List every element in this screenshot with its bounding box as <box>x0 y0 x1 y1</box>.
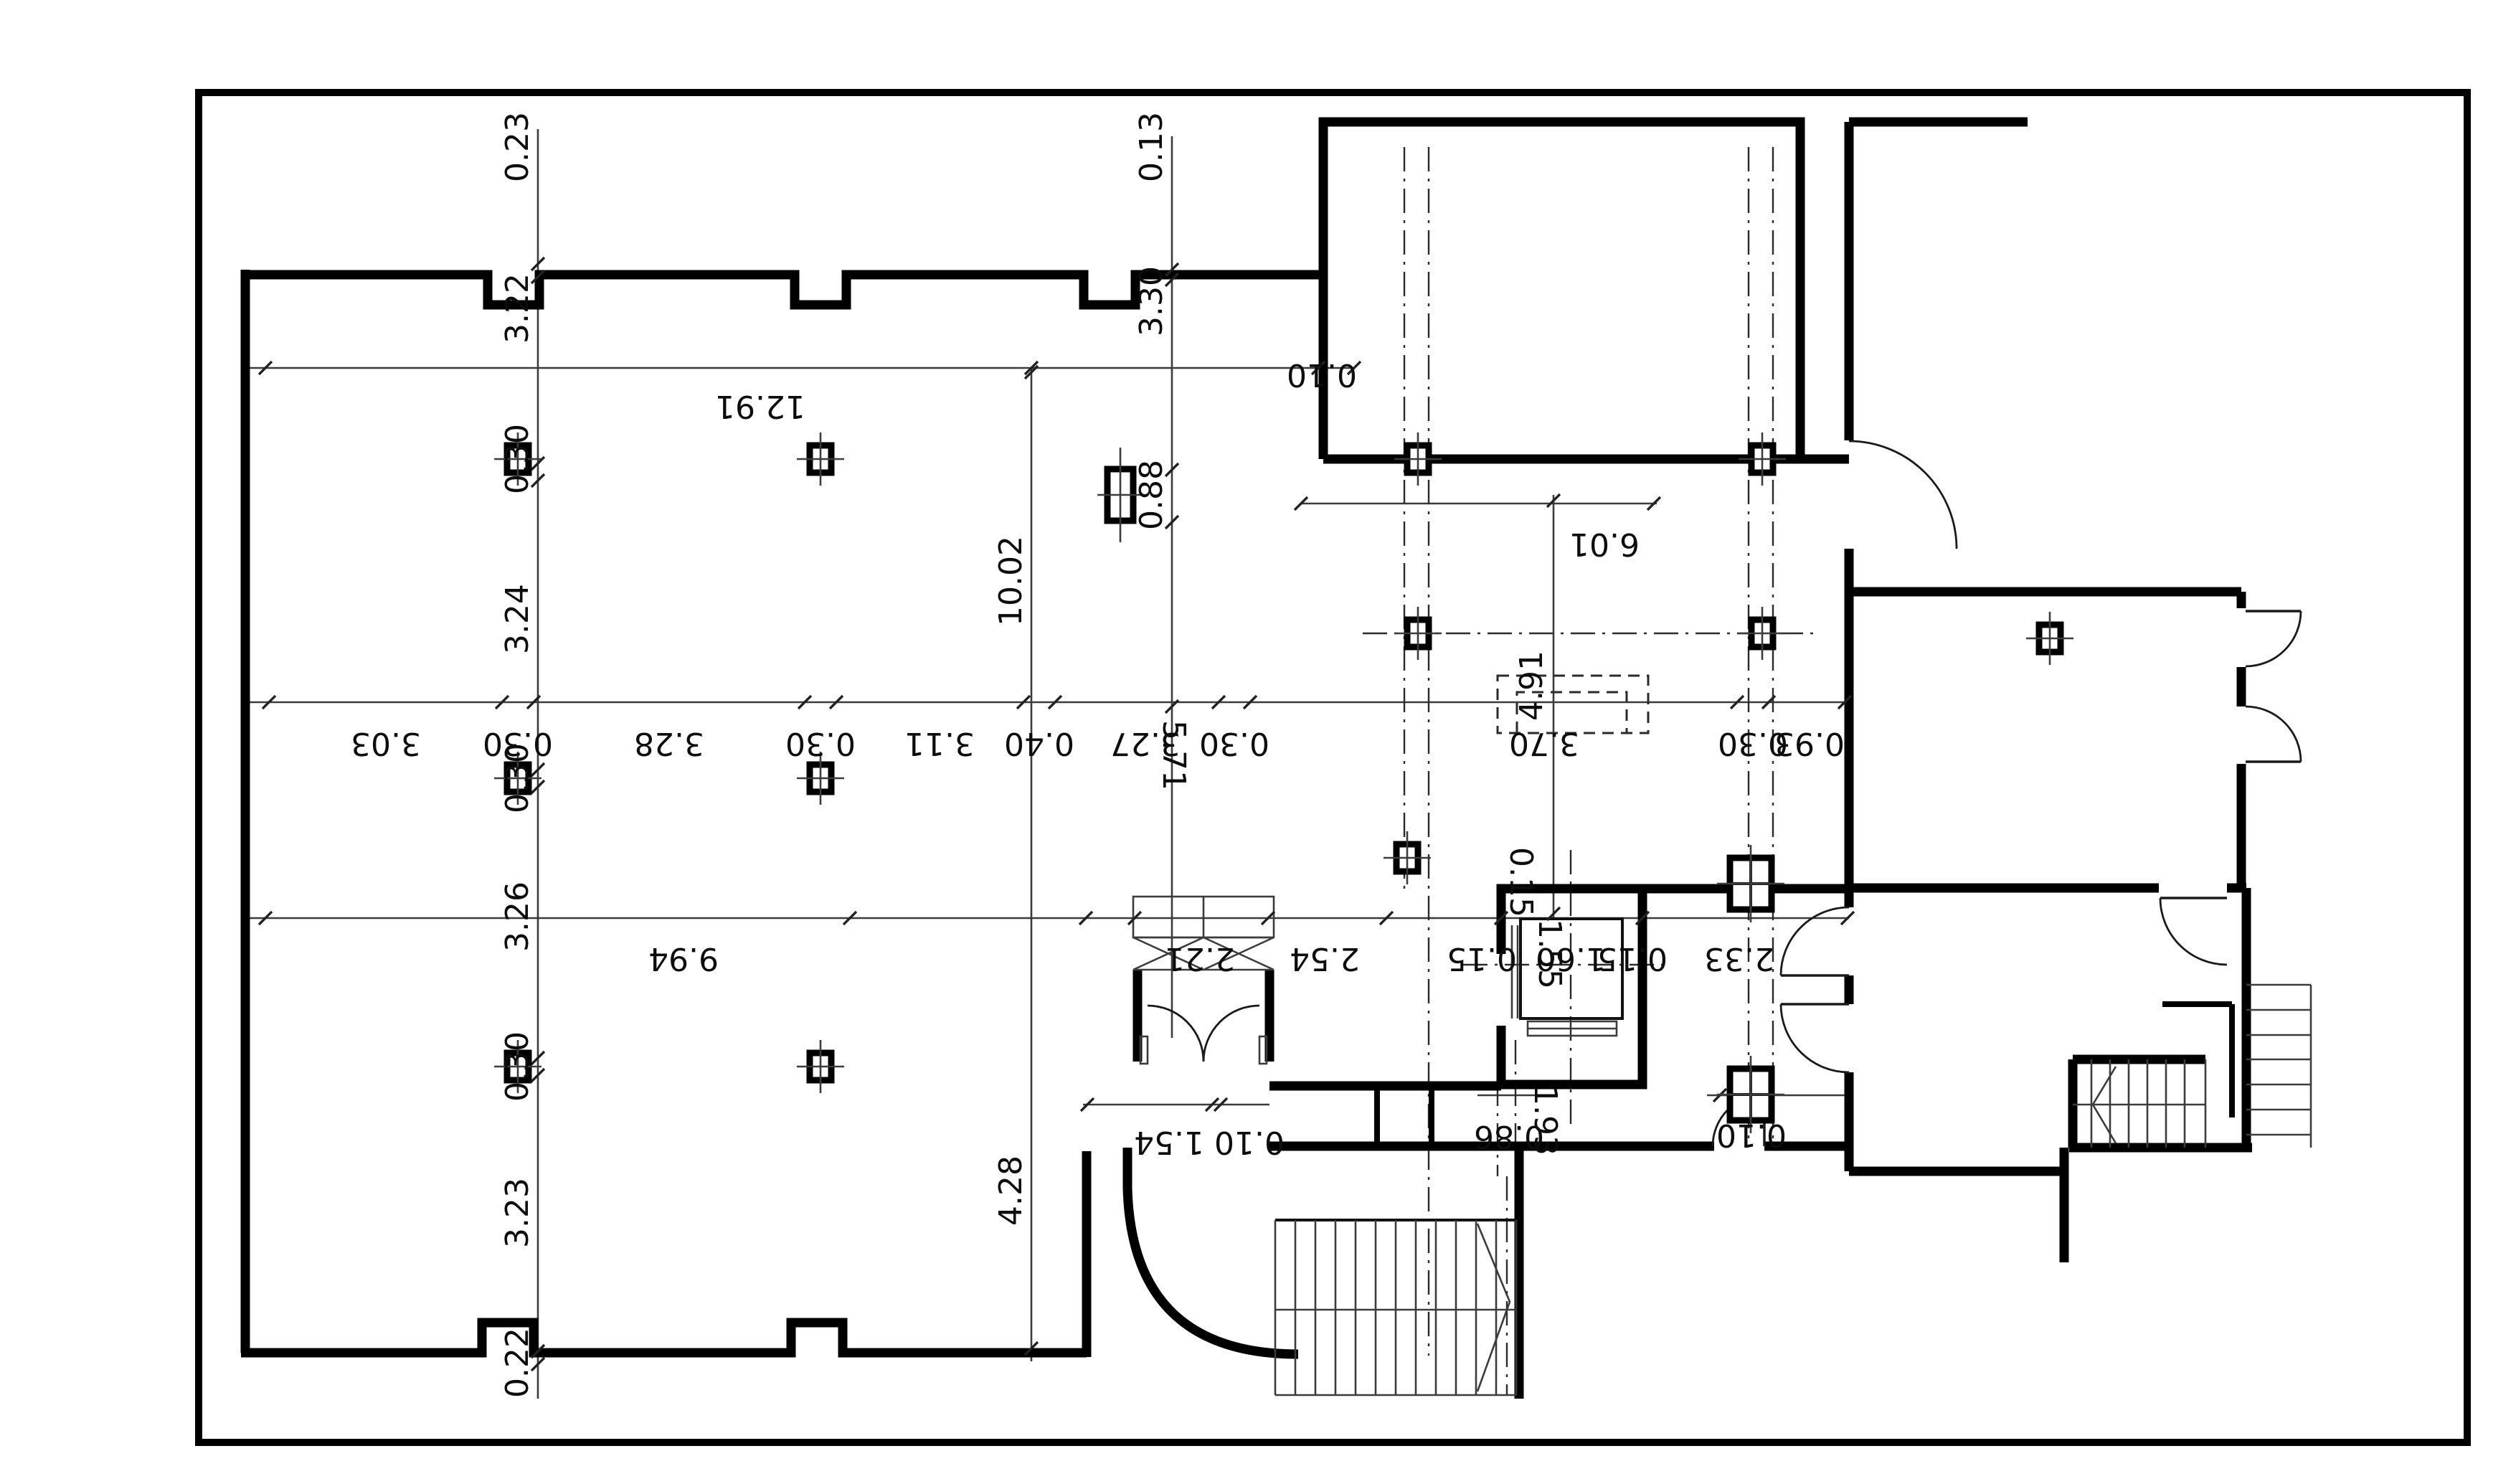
stair-risers-right <box>2091 1059 2185 1148</box>
door-swing-arc-right <box>1203 1006 1259 1062</box>
dim-label: 0.15 <box>1503 847 1539 917</box>
dim-label: 2.54 <box>1290 940 1360 977</box>
elevator-shaft <box>1501 889 1642 1084</box>
door-swing-arc-left <box>1148 1006 1203 1062</box>
room-a-door2-arc <box>2246 706 2301 762</box>
stair-direction-mark <box>1477 1224 1510 1391</box>
dim-label: 1.93 <box>1527 1085 1564 1155</box>
column-axis <box>1384 831 1431 884</box>
dim-label: 0.30 <box>785 725 856 762</box>
entrance-double-door <box>1140 1006 1267 1064</box>
column-axis <box>1739 433 1786 486</box>
dim-label: 3.24 <box>499 584 536 654</box>
floor-plan-drawing: 0.23 3.22 0.30 3.24 0.30 3.26 0.30 3.23 … <box>0 0 2516 1484</box>
hall-bottom-wall <box>241 1323 1087 1353</box>
dim-label: 0.23 <box>499 112 536 182</box>
dimension-lines <box>241 129 1849 1399</box>
dim-label: 3.03 <box>351 725 421 762</box>
dim-label: 9.94 <box>648 940 719 977</box>
dim-label: 0.30 <box>483 725 553 762</box>
dim-label: 0.10 <box>1214 1124 1285 1161</box>
stair-risers-main <box>1275 1220 1516 1395</box>
dim-label: 0.13 <box>1133 112 1170 182</box>
dim-label: 0.40 <box>1004 725 1074 762</box>
room-a-door1-arc <box>2246 611 2301 666</box>
dim-label: 1.54 <box>1134 1124 1204 1161</box>
dim-label: 3.23 <box>499 1178 536 1248</box>
dim-label: 0.93 <box>1774 725 1845 762</box>
dim-label: 3.26 <box>499 882 536 952</box>
dim-label: 0.15 <box>1447 940 1517 977</box>
dim-label: 0.30 <box>499 424 536 494</box>
column-axis <box>2026 612 2073 665</box>
dim-label: 6.01 <box>1569 526 1640 562</box>
dim-label: 3.11 <box>904 725 975 762</box>
generated-geometry <box>259 257 2311 1395</box>
door-swings <box>1713 441 2301 1146</box>
dim-label: 3.70 <box>1509 725 1579 762</box>
lobby-pier <box>1377 1086 1432 1148</box>
dim-label: 10.02 <box>993 536 1029 626</box>
dim-label: 2.33 <box>1704 940 1774 977</box>
dim-label: 4.91 <box>1513 651 1550 721</box>
dim-label: 3.28 <box>634 725 704 762</box>
column-axis <box>797 1040 844 1093</box>
dim-label: 0.30 <box>499 1031 536 1102</box>
column-axis <box>1739 607 1786 660</box>
dim-label: 0.10 <box>1716 1117 1787 1153</box>
dim-label: 0.15 <box>1597 940 1668 977</box>
column-axis <box>1394 607 1442 660</box>
floor-plan-canvas: 0.23 3.22 0.30 3.24 0.30 3.26 0.30 3.23 … <box>0 0 2516 1484</box>
upper-right-room <box>1323 122 1800 459</box>
dim-label: 0.10 <box>1287 356 1357 393</box>
dim-label: 0.30 <box>1199 725 1269 762</box>
curved-wall <box>1127 1188 1298 1354</box>
corridor-door2-arc <box>1781 1004 1849 1072</box>
dim-label: 5.71 <box>1155 720 1192 790</box>
axis-centerlines <box>1363 147 1815 1395</box>
dimension-ticks <box>259 257 1854 1371</box>
column-axis <box>1394 433 1442 486</box>
dim-label: 0.22 <box>499 1328 536 1398</box>
dim-label: 0.88 <box>1133 460 1170 530</box>
dim-label: 1.60 <box>1536 940 1606 977</box>
dim-label: 3.22 <box>499 273 536 344</box>
room-b-door-arc <box>2160 898 2227 965</box>
vestibule-side-walls <box>1138 970 1269 1062</box>
dim-label: 2.21 <box>1165 940 1235 977</box>
column-axis <box>797 433 844 486</box>
dim-label: 3.30 <box>1133 266 1170 336</box>
dim-label: 12.91 <box>715 388 805 425</box>
dim-label: 4.28 <box>993 1155 1029 1226</box>
section-door-arc <box>1849 441 1957 549</box>
exterior-treads <box>2246 985 2311 1135</box>
